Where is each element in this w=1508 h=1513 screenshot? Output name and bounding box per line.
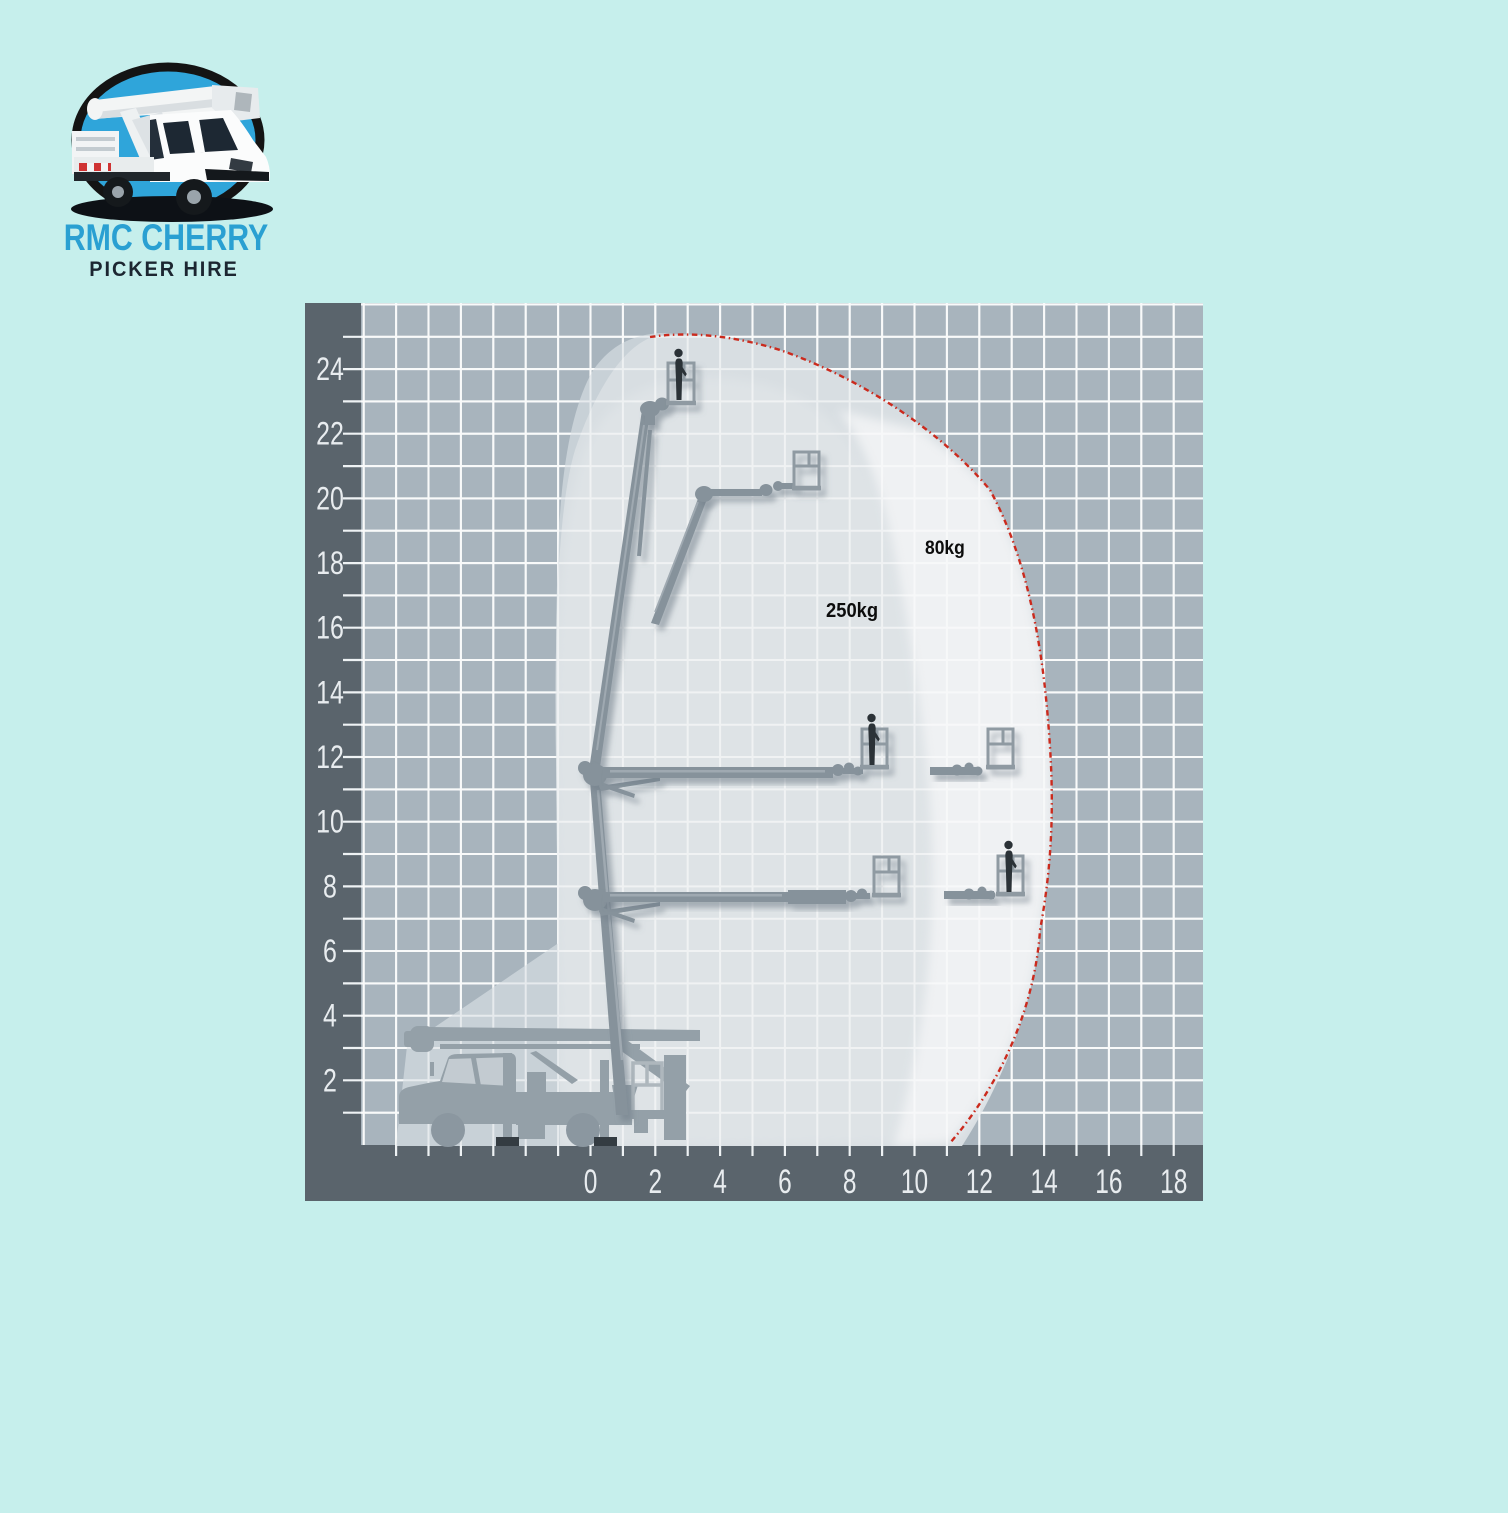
svg-text:6: 6 bbox=[778, 1163, 792, 1201]
svg-text:14: 14 bbox=[1030, 1163, 1057, 1201]
svg-text:16: 16 bbox=[316, 611, 344, 647]
svg-text:PICKER HIRE: PICKER HIRE bbox=[89, 258, 238, 282]
svg-text:2: 2 bbox=[323, 1063, 337, 1099]
svg-text:0: 0 bbox=[584, 1163, 598, 1201]
svg-text:18: 18 bbox=[1160, 1163, 1187, 1201]
svg-text:6: 6 bbox=[323, 934, 337, 970]
svg-text:RMC CHERRY: RMC CHERRY bbox=[64, 217, 269, 259]
svg-text:4: 4 bbox=[713, 1163, 727, 1201]
svg-text:2: 2 bbox=[648, 1163, 662, 1201]
svg-text:16: 16 bbox=[1095, 1163, 1122, 1201]
svg-text:10: 10 bbox=[901, 1163, 928, 1201]
svg-text:80kg: 80kg bbox=[925, 536, 965, 558]
svg-text:22: 22 bbox=[316, 417, 344, 453]
svg-text:8: 8 bbox=[323, 870, 337, 906]
svg-text:10: 10 bbox=[316, 805, 344, 841]
svg-text:8: 8 bbox=[843, 1163, 857, 1201]
svg-text:12: 12 bbox=[966, 1163, 993, 1201]
svg-text:4: 4 bbox=[323, 999, 337, 1035]
svg-text:12: 12 bbox=[316, 740, 344, 776]
svg-text:18: 18 bbox=[316, 546, 344, 582]
svg-text:14: 14 bbox=[316, 676, 344, 712]
svg-text:24: 24 bbox=[316, 352, 344, 388]
svg-text:20: 20 bbox=[316, 482, 344, 518]
svg-text:250kg: 250kg bbox=[826, 600, 878, 622]
